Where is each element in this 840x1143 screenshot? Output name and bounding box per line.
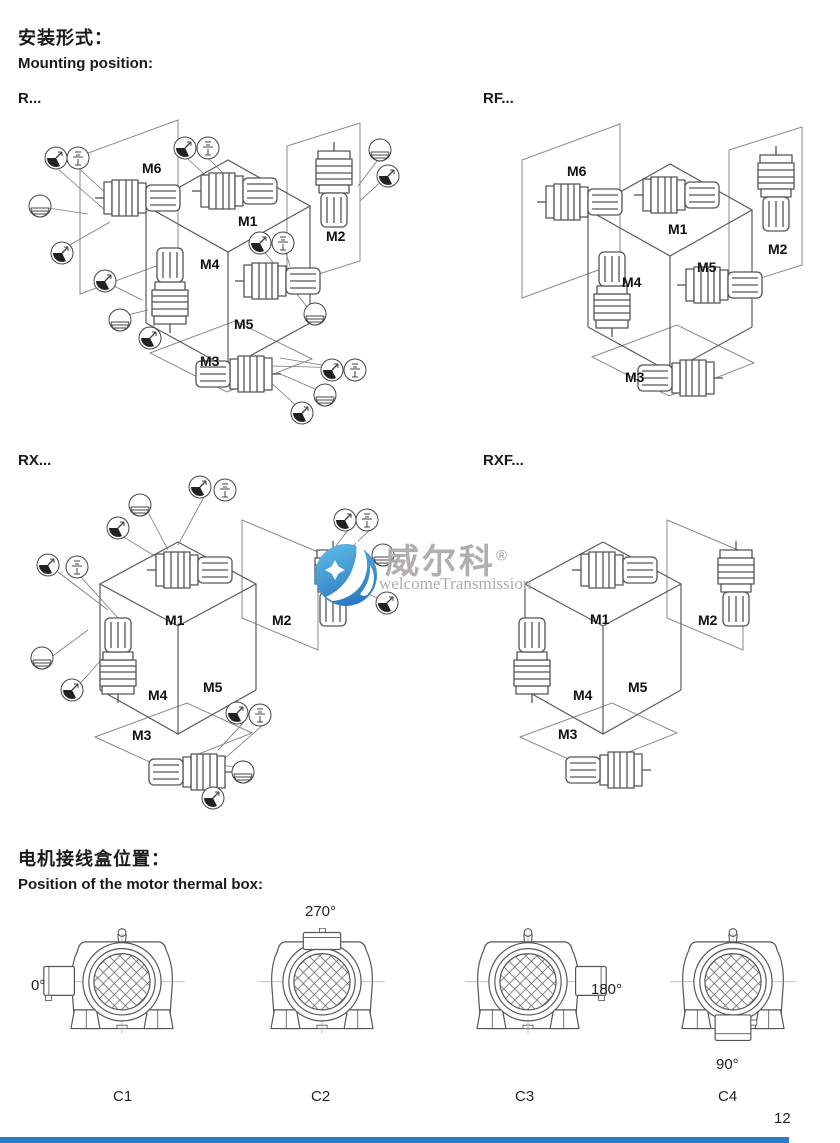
position-label-m5: M5 (203, 679, 223, 695)
gearmotor-m2 (718, 541, 754, 626)
mounting-diagram-rf: M1 M2 M3 M4 M5 M6 (480, 116, 840, 450)
mounting-diagram-rxf: M1 M2 M3 M4 M5 (470, 450, 840, 840)
catalog-page: 安装形式： Mounting position: R... RF... RX..… (0, 0, 840, 1143)
position-label-m3: M3 (558, 726, 578, 742)
gearmotor-m4 (100, 618, 136, 703)
position-label-m4: M4 (573, 687, 593, 703)
gearmotor-m1 (147, 552, 232, 588)
position-label-m3: M3 (132, 727, 152, 743)
gearmotor-m2 (758, 146, 794, 231)
motor-front-c4 (648, 928, 818, 1056)
gearmotor-m1 (192, 173, 277, 209)
gearmotor-m2 (315, 541, 351, 626)
position-label-m4: M4 (622, 274, 642, 290)
position-label-m5: M5 (628, 679, 648, 695)
position-label-m1: M1 (238, 213, 258, 229)
angle-label-c1: 0° (31, 977, 45, 994)
gearmotor-m6 (537, 184, 622, 220)
gearmotor-m3 (638, 360, 723, 396)
position-label-m5: M5 (697, 259, 717, 275)
gearmotor-m4 (594, 252, 630, 337)
angle-label-c4: 90° (716, 1056, 739, 1073)
gearmotor-m2 (316, 142, 352, 227)
position-label-m5: M5 (234, 316, 254, 332)
section2-header: 电机接线盒位置： Position of the motor thermal b… (18, 845, 263, 893)
terminal-box-bottom (715, 1015, 757, 1040)
angle-label-c3: 180° (591, 981, 622, 998)
position-label-m3: M3 (625, 369, 645, 385)
position-label-m2: M2 (272, 612, 292, 628)
position-label-m4: M4 (200, 256, 220, 272)
gearmotor-m1 (572, 552, 657, 588)
motor-front-c2 (237, 928, 407, 1056)
gearmotor-m3 (149, 754, 234, 790)
variant-label-c1: C1 (113, 1088, 132, 1105)
gearmotor-m6 (95, 180, 180, 216)
series-label-r: R... (18, 90, 41, 107)
position-label-m1: M1 (590, 611, 610, 627)
gearmotor-m3 (566, 752, 651, 788)
motor-front-c3 (443, 928, 613, 1056)
terminal-box-left (44, 967, 75, 1001)
page-title-en: Mounting position: (18, 55, 153, 72)
position-label-m4: M4 (148, 687, 168, 703)
gearmotor-m1 (634, 177, 719, 213)
gearmotor-m5 (677, 267, 762, 303)
section2-title-en: Position of the motor thermal box: (18, 876, 263, 893)
position-label-m3: M3 (200, 353, 220, 369)
page-header: 安装形式： Mounting position: (18, 24, 153, 72)
terminal-box-top (303, 928, 340, 949)
series-label-rf: RF... (483, 90, 514, 107)
position-label-m2: M2 (698, 612, 718, 628)
motor-front-c1 (37, 928, 207, 1056)
footer-accent-bar (0, 1137, 789, 1143)
gearmotor-m5 (235, 263, 320, 299)
mounting-diagram-rx: M1 M2 M3 M4 M5 (18, 450, 458, 840)
variant-label-c4: C4 (718, 1088, 737, 1105)
angle-label-c2: 270° (305, 903, 336, 920)
page-title-cn: 安装形式： (18, 24, 153, 50)
position-label-m2: M2 (768, 241, 788, 257)
gearmotor-m4 (514, 618, 550, 703)
position-label-m6: M6 (142, 160, 162, 176)
gearmotor-m4 (152, 248, 188, 333)
variant-label-c3: C3 (515, 1088, 534, 1105)
section2-title-cn: 电机接线盒位置： (18, 845, 263, 871)
page-number: 12 (774, 1110, 791, 1127)
position-label-m6: M6 (567, 163, 587, 179)
position-label-m1: M1 (165, 612, 185, 628)
variant-label-c2: C2 (311, 1088, 330, 1105)
mounting-diagram-r: M1 M2 M3 M4 M5 M6 (28, 116, 448, 450)
position-label-m2: M2 (326, 228, 346, 244)
position-label-m1: M1 (668, 221, 688, 237)
